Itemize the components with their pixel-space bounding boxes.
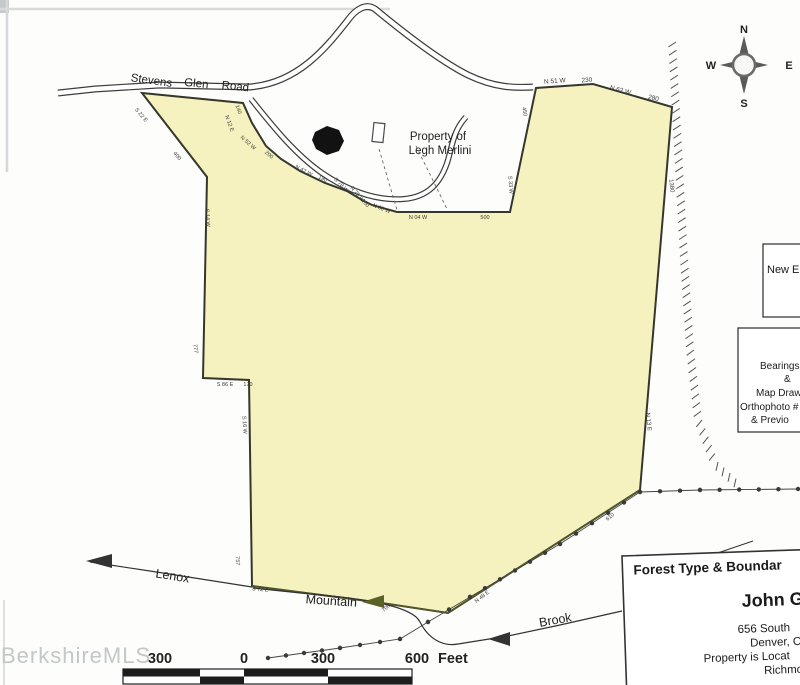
- stone-wall-marker: [558, 542, 562, 546]
- stone-wall-marker: [302, 651, 306, 655]
- forest-box-addr2: Denver, C: [750, 636, 800, 650]
- scale-0: 0: [240, 651, 248, 667]
- bearings-box: Bearings & Map Draw Orthophoto # & Previ…: [738, 328, 800, 432]
- stone-wall-marker: [574, 531, 578, 535]
- bearing-label: 500: [480, 215, 489, 221]
- building: [372, 123, 385, 143]
- bearing-label: 757: [234, 556, 241, 566]
- road-name-word2: Glen: [184, 77, 209, 91]
- scale-300-right: 300: [311, 651, 335, 667]
- bearing-label: 777: [191, 344, 198, 354]
- stone-wall-marker: [776, 487, 780, 491]
- bearing-label: 230: [581, 77, 593, 85]
- stone-wall-marker: [757, 487, 761, 491]
- stone-wall-marker: [590, 521, 594, 525]
- stone-wall-marker: [658, 489, 662, 493]
- stone-wall-marker: [358, 643, 362, 647]
- stone-wall-marker: [398, 637, 402, 641]
- stone-wall-marker: [796, 487, 800, 491]
- stone-wall-marker: [528, 559, 532, 563]
- stone-wall-marker: [426, 620, 430, 624]
- compass-s-label: S: [740, 98, 747, 110]
- scale-600: 600: [405, 651, 429, 667]
- scale-300-left: 300: [148, 651, 172, 667]
- bearings-box-line4: Orthophoto #: [740, 402, 799, 413]
- new-box-text: New E: [767, 264, 799, 276]
- stone-wall-marker: [468, 595, 472, 599]
- bearing-label: N 04 W: [409, 215, 428, 221]
- scanned-survey-map-page: New E Bearings & Map Draw Orthophoto # &…: [0, 0, 800, 685]
- stone-wall-marker: [698, 488, 702, 492]
- forest-box-addr1: 656 South: [737, 622, 790, 636]
- forest-info-box: Forest Type & Boundar John G 656 South D…: [622, 549, 800, 685]
- stone-wall-marker: [678, 488, 682, 492]
- watermark: BerkshireMLS: [1, 643, 151, 668]
- stone-wall-marker: [622, 500, 626, 504]
- bearing-label: 170: [243, 382, 252, 388]
- new-box: New E: [763, 244, 800, 317]
- bearing-label: S 86 E: [217, 382, 234, 388]
- bearings-box-line1: Bearings: [760, 361, 799, 372]
- property-of-label: Property of: [410, 131, 467, 143]
- stone-wall-marker: [737, 487, 741, 491]
- stone-wall-marker: [498, 577, 502, 581]
- bearing-label: S 72 E: [252, 586, 269, 593]
- stone-wall-marker: [338, 646, 342, 650]
- forest-box-addr4: Richmo: [764, 664, 800, 677]
- compass-n-label: N: [740, 24, 748, 36]
- scale-unit: Feet: [438, 651, 468, 667]
- bearings-box-line5: & Previo: [751, 415, 789, 426]
- survey-map: New E Bearings & Map Draw Orthophoto # &…: [0, 0, 800, 685]
- stone-wall-marker: [266, 656, 270, 660]
- compass-w-label: W: [706, 60, 717, 72]
- stone-wall-marker: [543, 551, 547, 555]
- bearings-box-line2: &: [784, 374, 791, 385]
- stone-wall-marker: [513, 568, 517, 572]
- stone-wall-marker: [378, 640, 382, 644]
- bearings-box-line3: Map Draw: [756, 388, 800, 399]
- compass-e-label: E: [785, 60, 792, 72]
- legh-merlini-label: Legh Merlini: [409, 145, 472, 157]
- stone-wall-marker: [717, 488, 721, 492]
- stone-wall-marker: [638, 490, 642, 494]
- stone-wall-marker: [284, 653, 288, 657]
- forest-box-name: John G: [741, 589, 800, 611]
- stone-wall-marker: [447, 607, 451, 611]
